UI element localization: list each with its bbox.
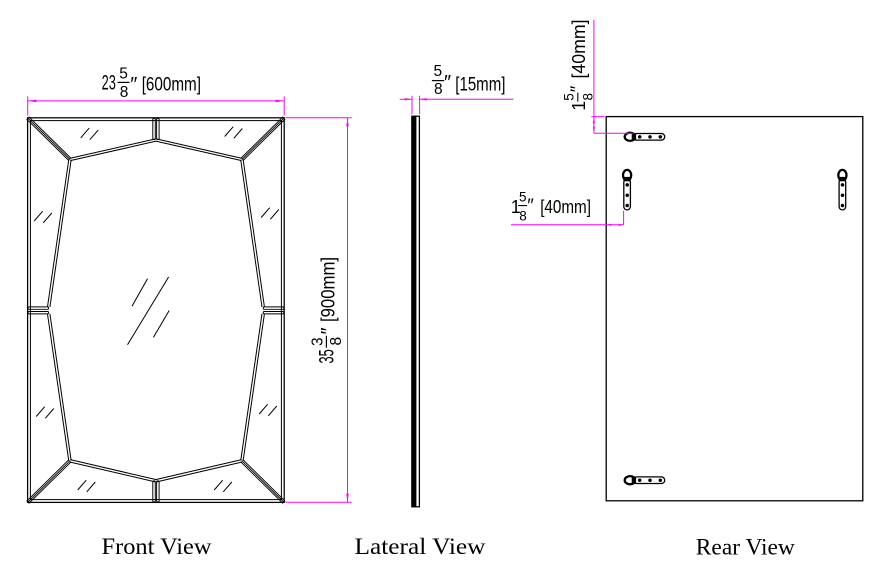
svg-text:[40mm]: [40mm] <box>540 196 591 217</box>
svg-text:3: 3 <box>309 337 326 346</box>
svg-text:23: 23 <box>102 71 116 95</box>
svg-text:5: 5 <box>433 63 442 80</box>
svg-text:5: 5 <box>119 65 128 82</box>
svg-text:1: 1 <box>569 101 589 111</box>
svg-text:[40mm]: [40mm] <box>568 20 589 79</box>
svg-text:[15mm]: [15mm] <box>455 73 505 95</box>
svg-text:Front View: Front View <box>102 534 212 560</box>
svg-text:Rear View: Rear View <box>696 535 795 561</box>
svg-text:8: 8 <box>519 208 527 223</box>
svg-text:″: ″ <box>130 74 137 96</box>
svg-text:″: ″ <box>527 194 534 215</box>
svg-text:8: 8 <box>120 84 129 101</box>
svg-text:Lateral View: Lateral View <box>355 534 486 560</box>
svg-text:[600mm]: [600mm] <box>142 74 201 96</box>
svg-text:35: 35 <box>315 349 339 363</box>
svg-text:5: 5 <box>562 93 577 101</box>
svg-text:[900mm]: [900mm] <box>318 257 340 322</box>
svg-text:″: ″ <box>444 72 451 94</box>
svg-text:8: 8 <box>328 337 345 346</box>
svg-text:″: ″ <box>318 327 340 334</box>
svg-text:8: 8 <box>581 93 596 101</box>
svg-text:″: ″ <box>567 85 588 92</box>
svg-text:5: 5 <box>519 189 527 204</box>
svg-text:8: 8 <box>434 81 443 98</box>
